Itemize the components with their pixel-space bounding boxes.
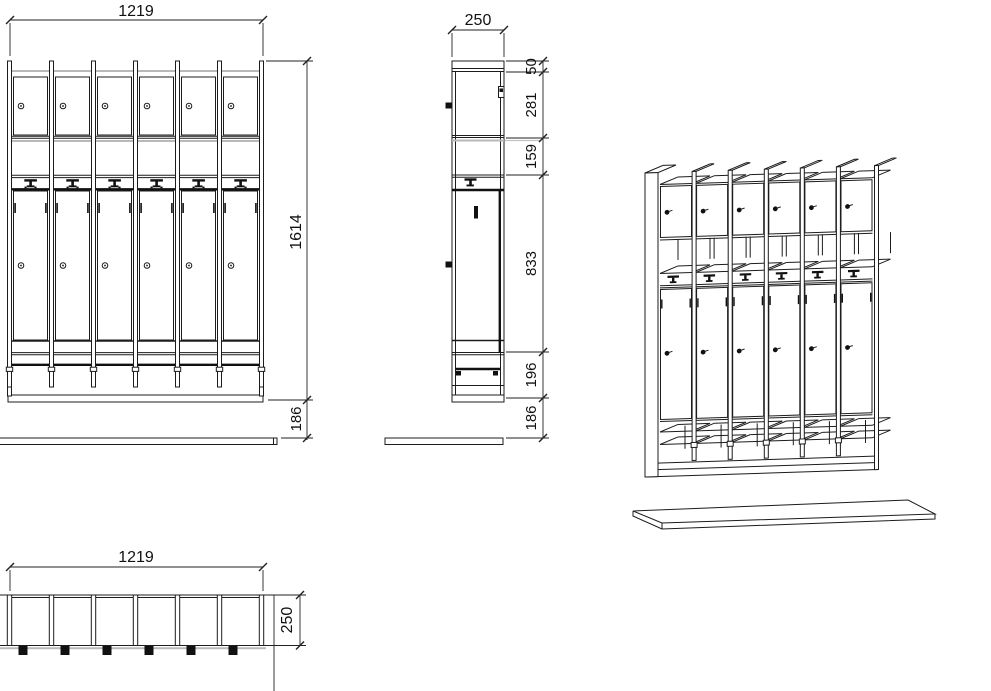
side-view: 250 50 281 159 833 196 186 (385, 12, 549, 445)
dim-top-width: 1219 (118, 549, 154, 566)
front-view-bench (0, 438, 277, 445)
dim-front-width: 1219 (118, 3, 154, 20)
drawing-canvas: 1219 1614 186 (0, 0, 991, 691)
top-view: 1219 250 (0, 549, 306, 691)
dim-side-section-3: 833 (523, 251, 540, 276)
isometric-view (633, 158, 935, 529)
dim-front-bench-gap: 186 (288, 406, 305, 431)
technical-drawing: 1219 1614 186 (0, 0, 991, 691)
dim-front-height: 1614 (288, 214, 305, 250)
dim-side-section-2: 159 (523, 144, 540, 169)
dim-side-section-1: 281 (523, 92, 540, 117)
front-view: 1219 1614 186 (0, 3, 313, 445)
side-view-bench (385, 438, 503, 445)
dim-side-section-0: 50 (523, 58, 540, 75)
dim-side-section-4: 196 (523, 362, 540, 387)
dim-side-section-5: 186 (523, 405, 540, 430)
top-view-partitions (7, 595, 263, 646)
iso-bench (633, 500, 935, 529)
iso-cabinet (645, 158, 897, 477)
dim-top-depth: 250 (279, 607, 296, 634)
dim-side-depth: 250 (465, 12, 492, 29)
